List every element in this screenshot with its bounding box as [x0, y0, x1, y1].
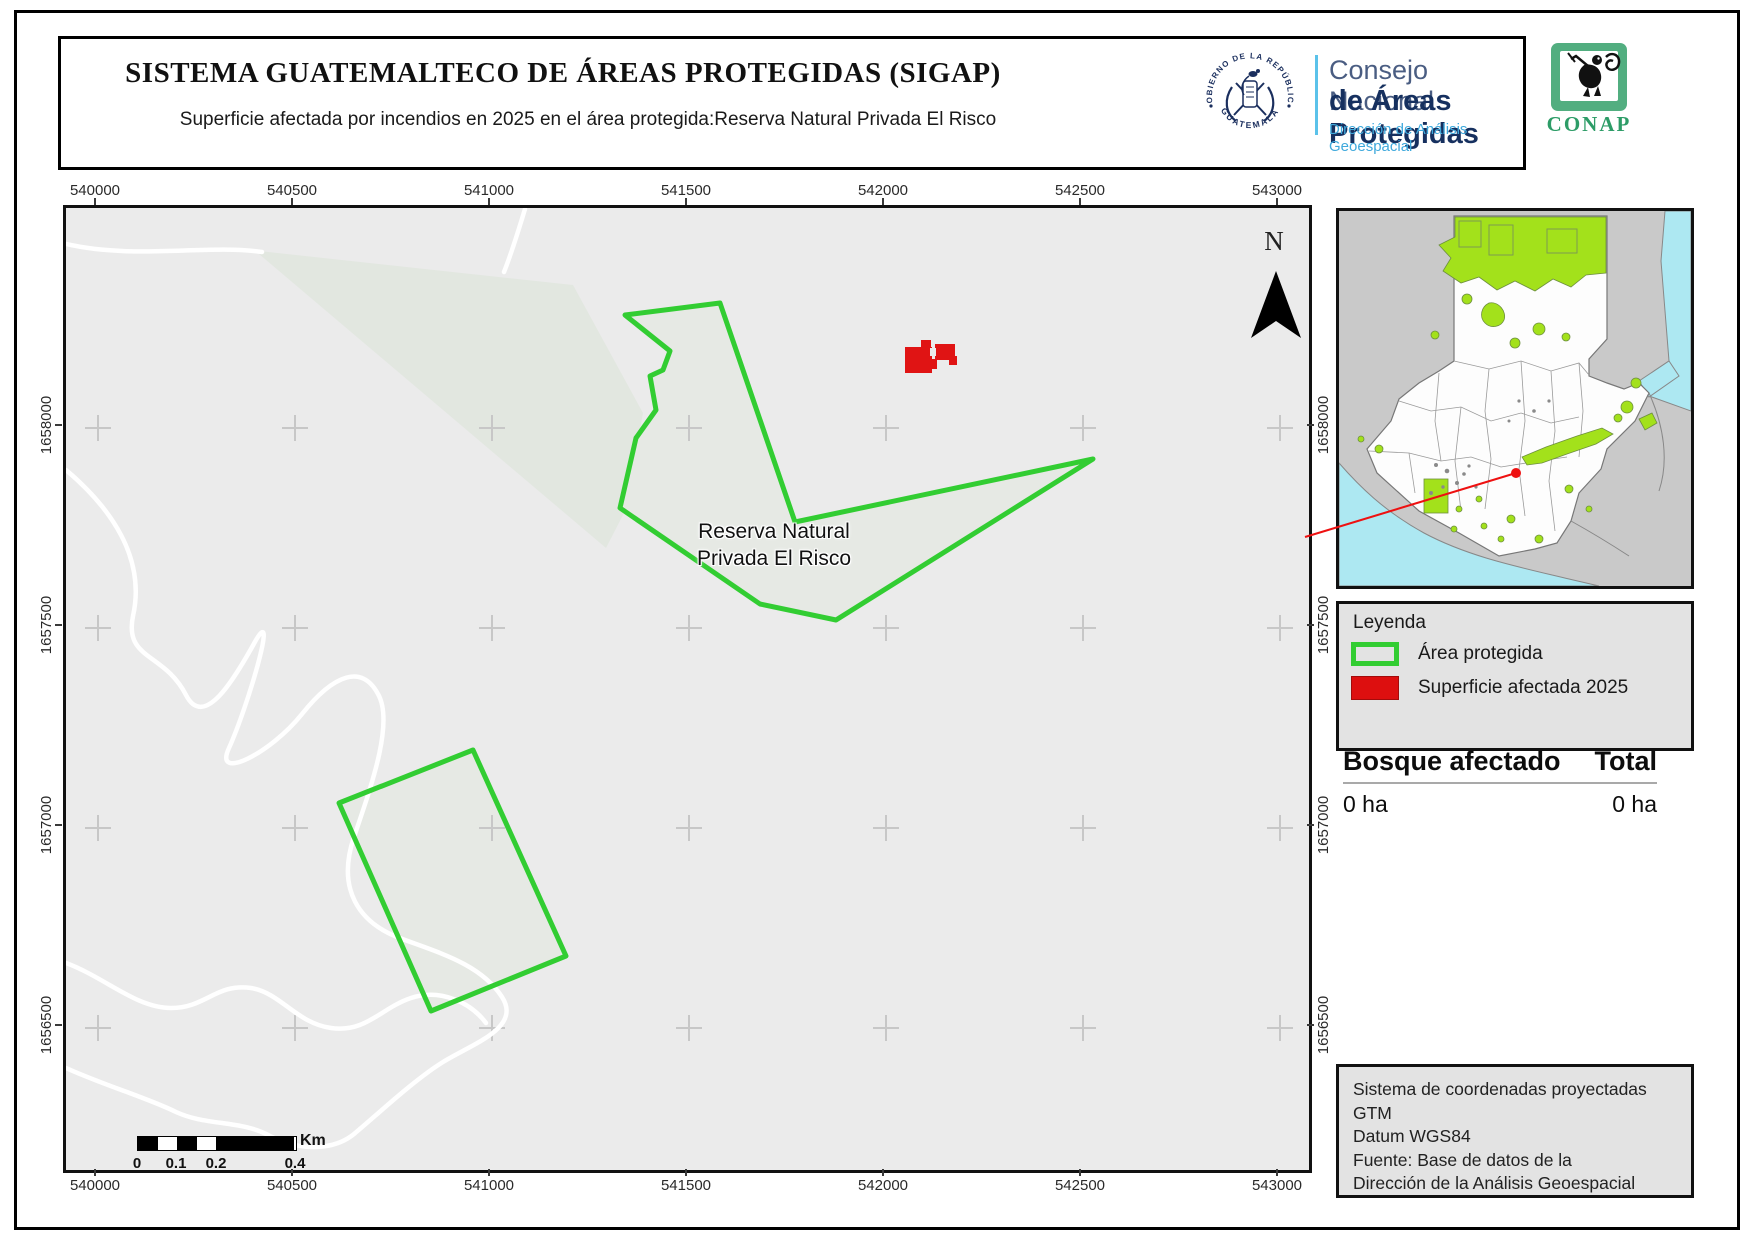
axis-tick: [291, 198, 293, 205]
north-arrow-icon: [1251, 271, 1301, 338]
axis-tick: [1307, 424, 1314, 426]
forest-shading-wedge: [259, 251, 643, 548]
source-line: GTM: [1353, 1102, 1691, 1126]
area-label-line2: Privada El Risco: [674, 545, 874, 572]
x-axis-label-bottom: 540500: [247, 1177, 337, 1194]
axis-tick: [55, 624, 62, 626]
axis-tick: [488, 198, 490, 205]
source-line: Fuente: Base de datos de la: [1353, 1149, 1691, 1173]
axis-tick: [685, 1169, 687, 1176]
axis-tick: [882, 198, 884, 205]
wordmark-divider: [1315, 55, 1318, 135]
axis-tick: [55, 824, 62, 826]
x-axis-label-top: 543000: [1232, 182, 1322, 199]
axis-tick: [94, 1169, 96, 1176]
source-line: Sistema de coordenadas proyectadas: [1353, 1078, 1691, 1102]
axis-tick: [1307, 824, 1314, 826]
stats-panel: Bosque afectado Total 0 ha 0 ha: [1343, 746, 1657, 818]
legend-title: Leyenda: [1353, 612, 1426, 634]
axis-tick: [1079, 1169, 1081, 1176]
scale-bar-label-01: 0.1: [156, 1155, 196, 1172]
x-axis-label-bottom: 541000: [444, 1177, 534, 1194]
x-axis-label-bottom: 542500: [1035, 1177, 1125, 1194]
axis-tick: [1307, 624, 1314, 626]
x-axis-label-bottom: 541500: [641, 1177, 731, 1194]
seal-emblem: [1227, 69, 1273, 121]
x-axis-label-top: 542000: [838, 182, 928, 199]
government-seal-icon: GOBIERNO DE LA REPÚBLICA GUATEMALA: [1200, 45, 1300, 145]
legend-item-label: Área protegida: [1418, 643, 1543, 665]
x-axis-label-top: 541500: [641, 182, 731, 199]
axis-tick: [55, 424, 62, 426]
y-axis-label-right: 1657000: [1315, 780, 1331, 870]
x-axis-label-bottom: 543000: [1232, 1177, 1322, 1194]
scale-bar-label-0: 0: [117, 1155, 157, 1172]
inset-overview-map: [1336, 208, 1694, 589]
scale-bar-segment: [138, 1137, 158, 1150]
stats-col2-header: Total: [1595, 746, 1658, 777]
protected-area-label: Reserva Natural Privada El Risco: [674, 518, 874, 572]
page-subtitle: Superficie afectada por incendios en 202…: [83, 109, 1093, 131]
y-axis-label-right: 1657500: [1315, 580, 1331, 670]
stats-col1-header: Bosque afectado: [1343, 746, 1561, 777]
scale-bar-label-02: 0.2: [196, 1155, 236, 1172]
scale-bar-label-04: 0.4: [275, 1155, 315, 1172]
source-line: Dirección de la Análisis Geoespacial: [1353, 1172, 1691, 1196]
protected-area-el-risco-fill: [620, 303, 1093, 620]
protected-area-swatch: [1351, 642, 1399, 666]
conap-wordmark-line3: Dirección de Análisis Geoespacial: [1329, 121, 1523, 155]
axis-tick: [882, 1169, 884, 1176]
stats-col1-value: 0 ha: [1343, 791, 1388, 818]
north-label: N: [1248, 226, 1300, 257]
y-axis-label-right: 1656500: [1315, 980, 1331, 1070]
scale-bar: [137, 1136, 297, 1151]
title-banner: SISTEMA GUATEMALTECO DE ÁREAS PROTEGIDAS…: [58, 36, 1526, 170]
x-axis-label-bottom: 540000: [50, 1177, 140, 1194]
axis-tick: [55, 1024, 62, 1026]
axis-tick: [1307, 1024, 1314, 1026]
x-axis-label-top: 540500: [247, 182, 337, 199]
source-line: Datum WGS84: [1353, 1125, 1691, 1149]
main-map-canvas: [66, 208, 1309, 1170]
scale-bar-segment: [216, 1137, 294, 1150]
y-axis-label-left: 1656500: [38, 980, 54, 1070]
page-title: SISTEMA GUATEMALTECO DE ÁREAS PROTEGIDAS…: [83, 57, 1043, 90]
x-axis-label-top: 540000: [50, 182, 140, 199]
scale-bar-unit: Km: [300, 1132, 326, 1150]
conap-logo-icon: [1550, 42, 1628, 112]
axis-tick: [488, 1169, 490, 1176]
axis-tick: [1276, 198, 1278, 205]
fire-affected-area: [905, 340, 957, 373]
x-axis-label-top: 542500: [1035, 182, 1125, 199]
fire-area-notch: [930, 348, 936, 356]
y-axis-label-left: 1657000: [38, 780, 54, 870]
conap-logo-label: CONAP: [1535, 112, 1643, 137]
axis-tick: [685, 198, 687, 205]
axis-tick: [94, 198, 96, 205]
axis-tick: [1079, 198, 1081, 205]
y-axis-label-left: 1657500: [38, 580, 54, 670]
scale-bar-segment: [177, 1137, 197, 1150]
y-axis-label-right: 1658000: [1315, 380, 1331, 470]
legend: Leyenda Área protegida Superficie afecta…: [1336, 601, 1694, 751]
x-axis-label-bottom: 542000: [838, 1177, 928, 1194]
y-axis-label-left: 1658000: [38, 380, 54, 470]
main-map-frame: [63, 205, 1312, 1173]
map-report-page: SISTEMA GUATEMALTECO DE ÁREAS PROTEGIDAS…: [0, 0, 1754, 1240]
area-label-line1: Reserva Natural: [674, 518, 874, 545]
coordinate-system-box: Sistema de coordenadas proyectadas GTM D…: [1336, 1064, 1694, 1198]
inset-map-canvas: [1339, 211, 1691, 586]
legend-item-label: Superficie afectada 2025: [1418, 677, 1628, 699]
stats-col2-value: 0 ha: [1612, 791, 1657, 818]
affected-area-swatch: [1351, 676, 1399, 700]
axis-tick: [291, 1169, 293, 1176]
axis-tick: [1276, 1169, 1278, 1176]
x-axis-label-top: 541000: [444, 182, 534, 199]
